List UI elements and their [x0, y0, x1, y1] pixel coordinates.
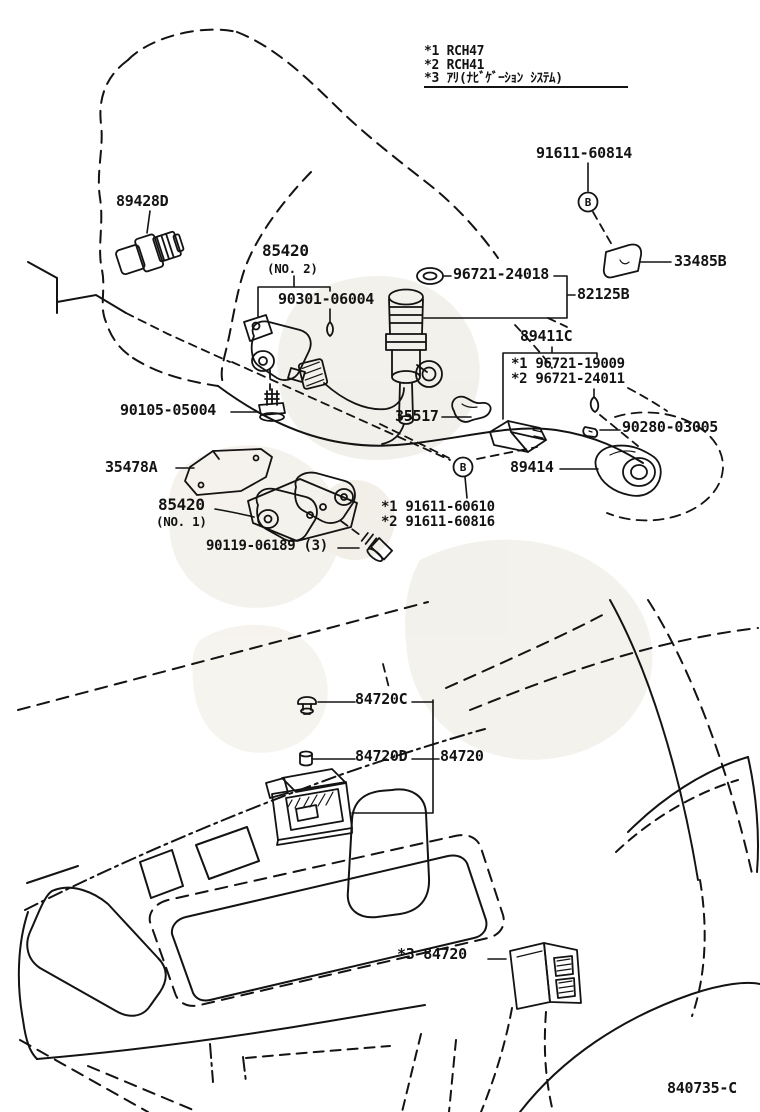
- part-label-35517: 35517: [395, 409, 439, 425]
- part-label-85420-no1: 85420: [158, 497, 205, 514]
- switch-84720: [266, 769, 352, 845]
- part-label-33485b: 33485B: [674, 254, 726, 270]
- boot-89414: [596, 446, 661, 496]
- oring-96721-24018: [417, 268, 443, 284]
- part-label-91611-60816: *2 91611-60816: [381, 515, 495, 530]
- part-label-85420-no1-note: (NO. 1): [156, 515, 207, 528]
- legend-line-2: *2 RCH41: [424, 59, 563, 73]
- svg-text:B: B: [460, 461, 467, 474]
- part-label-35478a: 35478A: [105, 460, 157, 476]
- switch-84720-nav: [510, 943, 581, 1009]
- bolt-mark-b-circle-top: B: [579, 193, 598, 212]
- sensor-89428d: [113, 226, 186, 279]
- part-label-90301-06004: 90301-06004: [278, 292, 374, 308]
- parts-diagram-canvas: B B: [0, 0, 760, 1112]
- clip-84720d: [300, 752, 312, 766]
- part-label-89428d: 89428D: [116, 194, 168, 210]
- part-label-89414: 89414: [510, 460, 554, 476]
- part-label-90105-05004: 90105-05004: [120, 403, 216, 419]
- part-label-84720-nav: *3 84720: [397, 947, 467, 963]
- drawing-code: 840735-C: [667, 1081, 737, 1097]
- part-label-91611-60814: 91611-60814: [536, 146, 632, 162]
- clip-90280-03005: [583, 427, 597, 437]
- legend-underline: [424, 86, 628, 88]
- part-label-82125b: 82125B: [577, 287, 629, 303]
- legend-line-3: *3 ｱﾘ(ﾅﾋﾞｹﾞｰｼｮﾝ ｼｽﾃﾑ): [424, 72, 563, 86]
- part-label-85420-no2: 85420: [262, 243, 309, 260]
- part-label-96721-24018: 96721-24018: [453, 267, 549, 283]
- part-label-96721-24011: *2 96721-24011: [511, 372, 625, 387]
- legend-line-1: *1 RCH47: [424, 45, 563, 59]
- part-label-84720d: 84720D: [355, 749, 407, 765]
- part-label-84720c: 84720C: [355, 692, 407, 708]
- part-label-96721-19009: *1 96721-19009: [511, 357, 625, 372]
- part-label-91611-60610: *1 91611-60610: [381, 500, 495, 515]
- part-label-84720: 84720: [440, 749, 484, 765]
- diagram-line-art: B B: [0, 0, 760, 1112]
- oring-96721-24011: [591, 397, 599, 412]
- part-label-85420-no2-note: (NO. 2): [267, 262, 318, 275]
- legend: *1 RCH47 *2 RCH41 *3 ｱﾘ(ﾅﾋﾞｹﾞｰｼｮﾝ ｼｽﾃﾑ): [424, 45, 563, 86]
- part-label-90119-06189: 90119-06189 (3): [206, 539, 328, 554]
- svg-text:B: B: [585, 196, 592, 209]
- cover-33485b: [604, 244, 641, 277]
- part-label-89411c: 89411C: [520, 329, 572, 345]
- part-label-90280-03005: 90280-03005: [622, 420, 718, 436]
- bolt-mark-b-circle-mid: B: [454, 458, 473, 477]
